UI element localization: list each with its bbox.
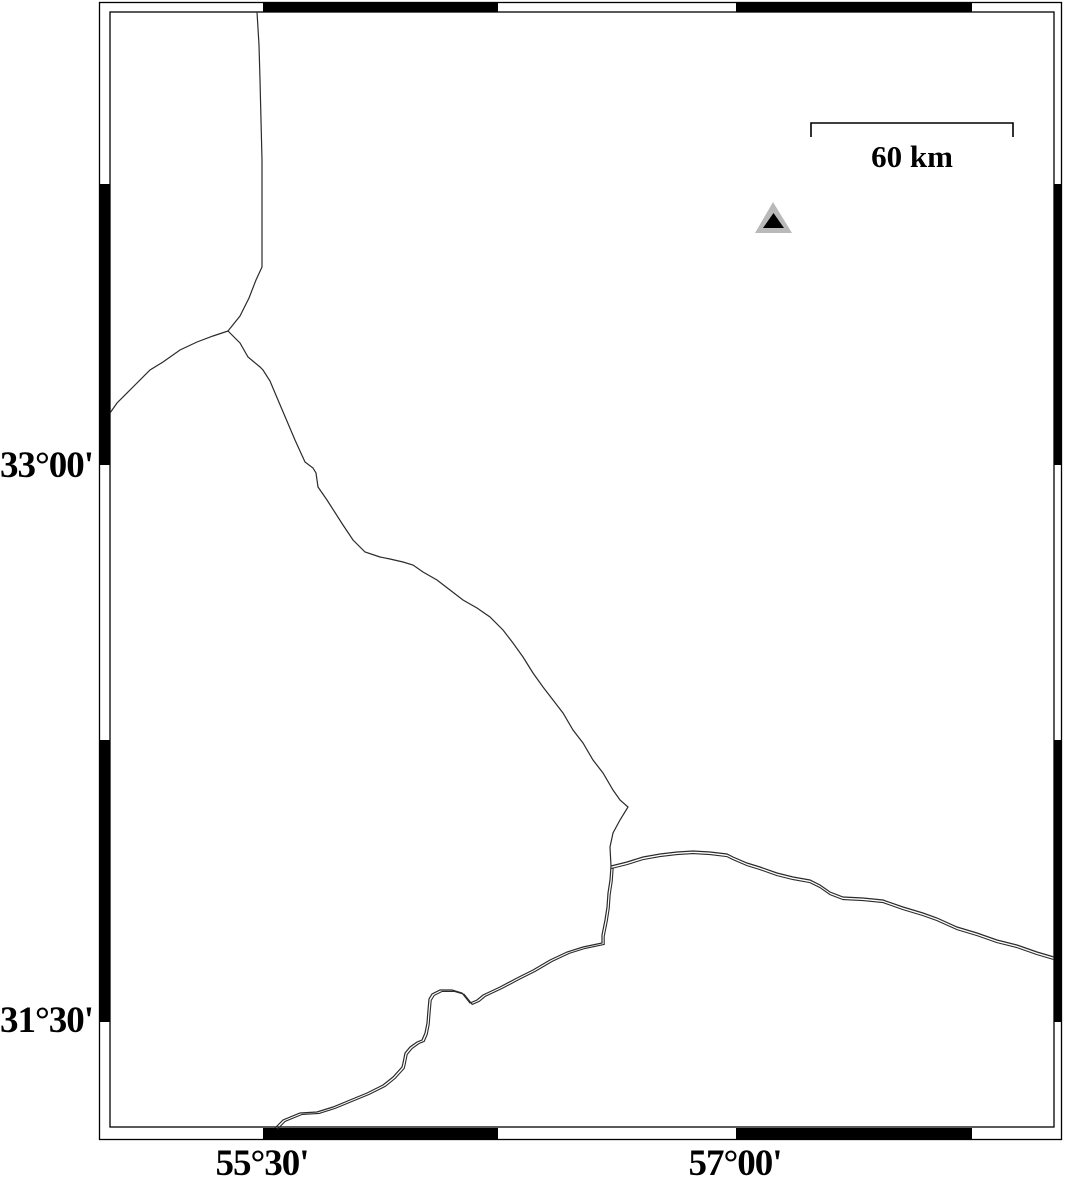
map-graphics <box>0 0 1066 1178</box>
feature-road-east <box>611 851 1054 957</box>
feature-boundary-central <box>228 331 628 866</box>
scale-bar-label: 60 km <box>871 139 953 175</box>
longitude-label-55-30: 55°30' <box>215 1142 308 1178</box>
feature-road-southwest <box>275 866 611 1128</box>
latitude-label-33-00: 33°00' <box>0 444 89 487</box>
scale-bar <box>811 123 1013 137</box>
feature-boundary-north <box>228 12 262 331</box>
longitude-label-57-00: 57°00' <box>688 1142 781 1178</box>
map-canvas: 33°00' 31°30' 55°30' 57°00' 60 km <box>0 0 1066 1178</box>
feature-boundary-west <box>110 331 228 413</box>
latitude-label-31-30: 31°30' <box>0 999 89 1042</box>
map-lines <box>110 12 1054 1129</box>
triangle-marker <box>755 202 792 233</box>
